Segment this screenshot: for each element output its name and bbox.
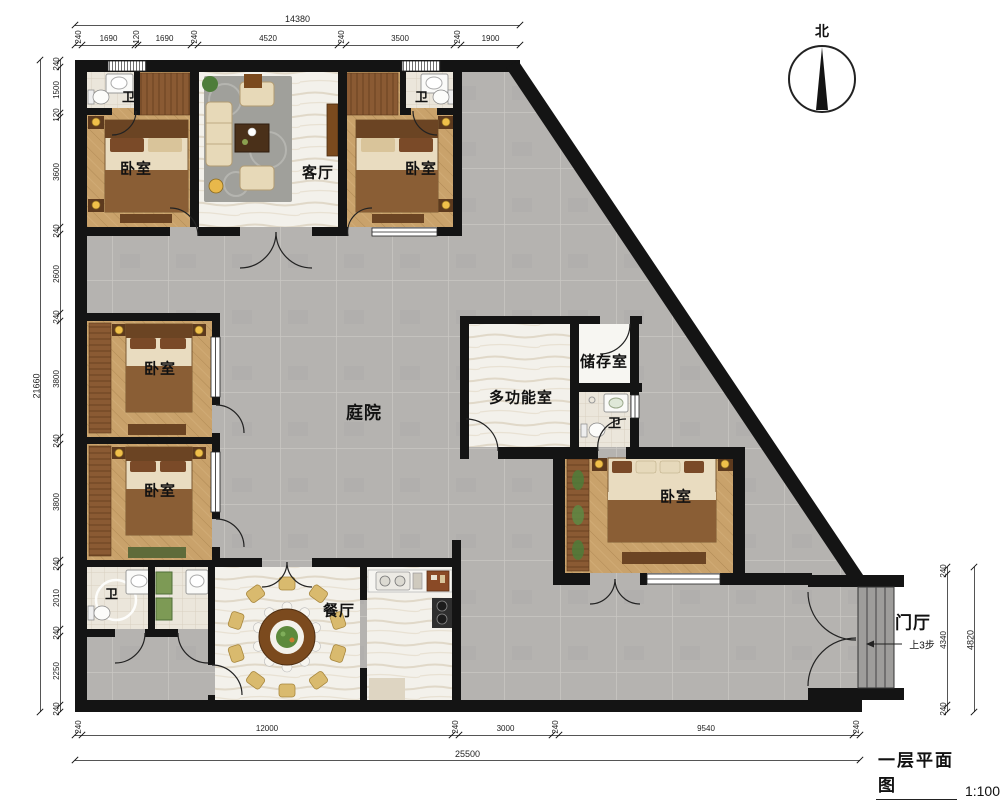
- label-courtyard: 庭院: [346, 399, 382, 424]
- label-bedroom-1: 卧室: [120, 158, 152, 179]
- label-bathroom-4: 卫: [105, 584, 119, 603]
- north-arrow: [789, 46, 855, 112]
- title-block: 一层平面图 1:100: [876, 746, 1000, 800]
- label-bathroom-3: 卫: [608, 413, 622, 432]
- label-foyer: 门厅: [895, 609, 931, 634]
- label-bathroom-1: 卫: [122, 87, 136, 106]
- label-bedroom-4: 卧室: [144, 480, 176, 501]
- label-storage-room: 储存室: [580, 351, 628, 372]
- label-steps-note: 上3步: [909, 637, 935, 652]
- label-bedroom-2: 卧室: [405, 158, 437, 179]
- entrance-steps: [858, 587, 902, 688]
- label-bathroom-2: 卫: [415, 87, 429, 106]
- drawing-title: 一层平面图: [876, 746, 957, 800]
- label-living-room: 客厅: [302, 162, 334, 183]
- label-bedroom-3: 卧室: [144, 358, 176, 379]
- label-north: 北: [815, 21, 829, 41]
- label-bedroom-5: 卧室: [660, 486, 692, 507]
- floor-plan-sheet: 卧室 卫 客厅 卧室 卫 卧室 卧室 庭院 多功能室 储存室 卫 卧室 卫 餐厅…: [0, 0, 1000, 800]
- drawing-scale: 1:100: [965, 783, 1000, 800]
- label-multifunction-room: 多功能室: [489, 387, 553, 408]
- label-dining-room: 餐厅: [323, 600, 355, 621]
